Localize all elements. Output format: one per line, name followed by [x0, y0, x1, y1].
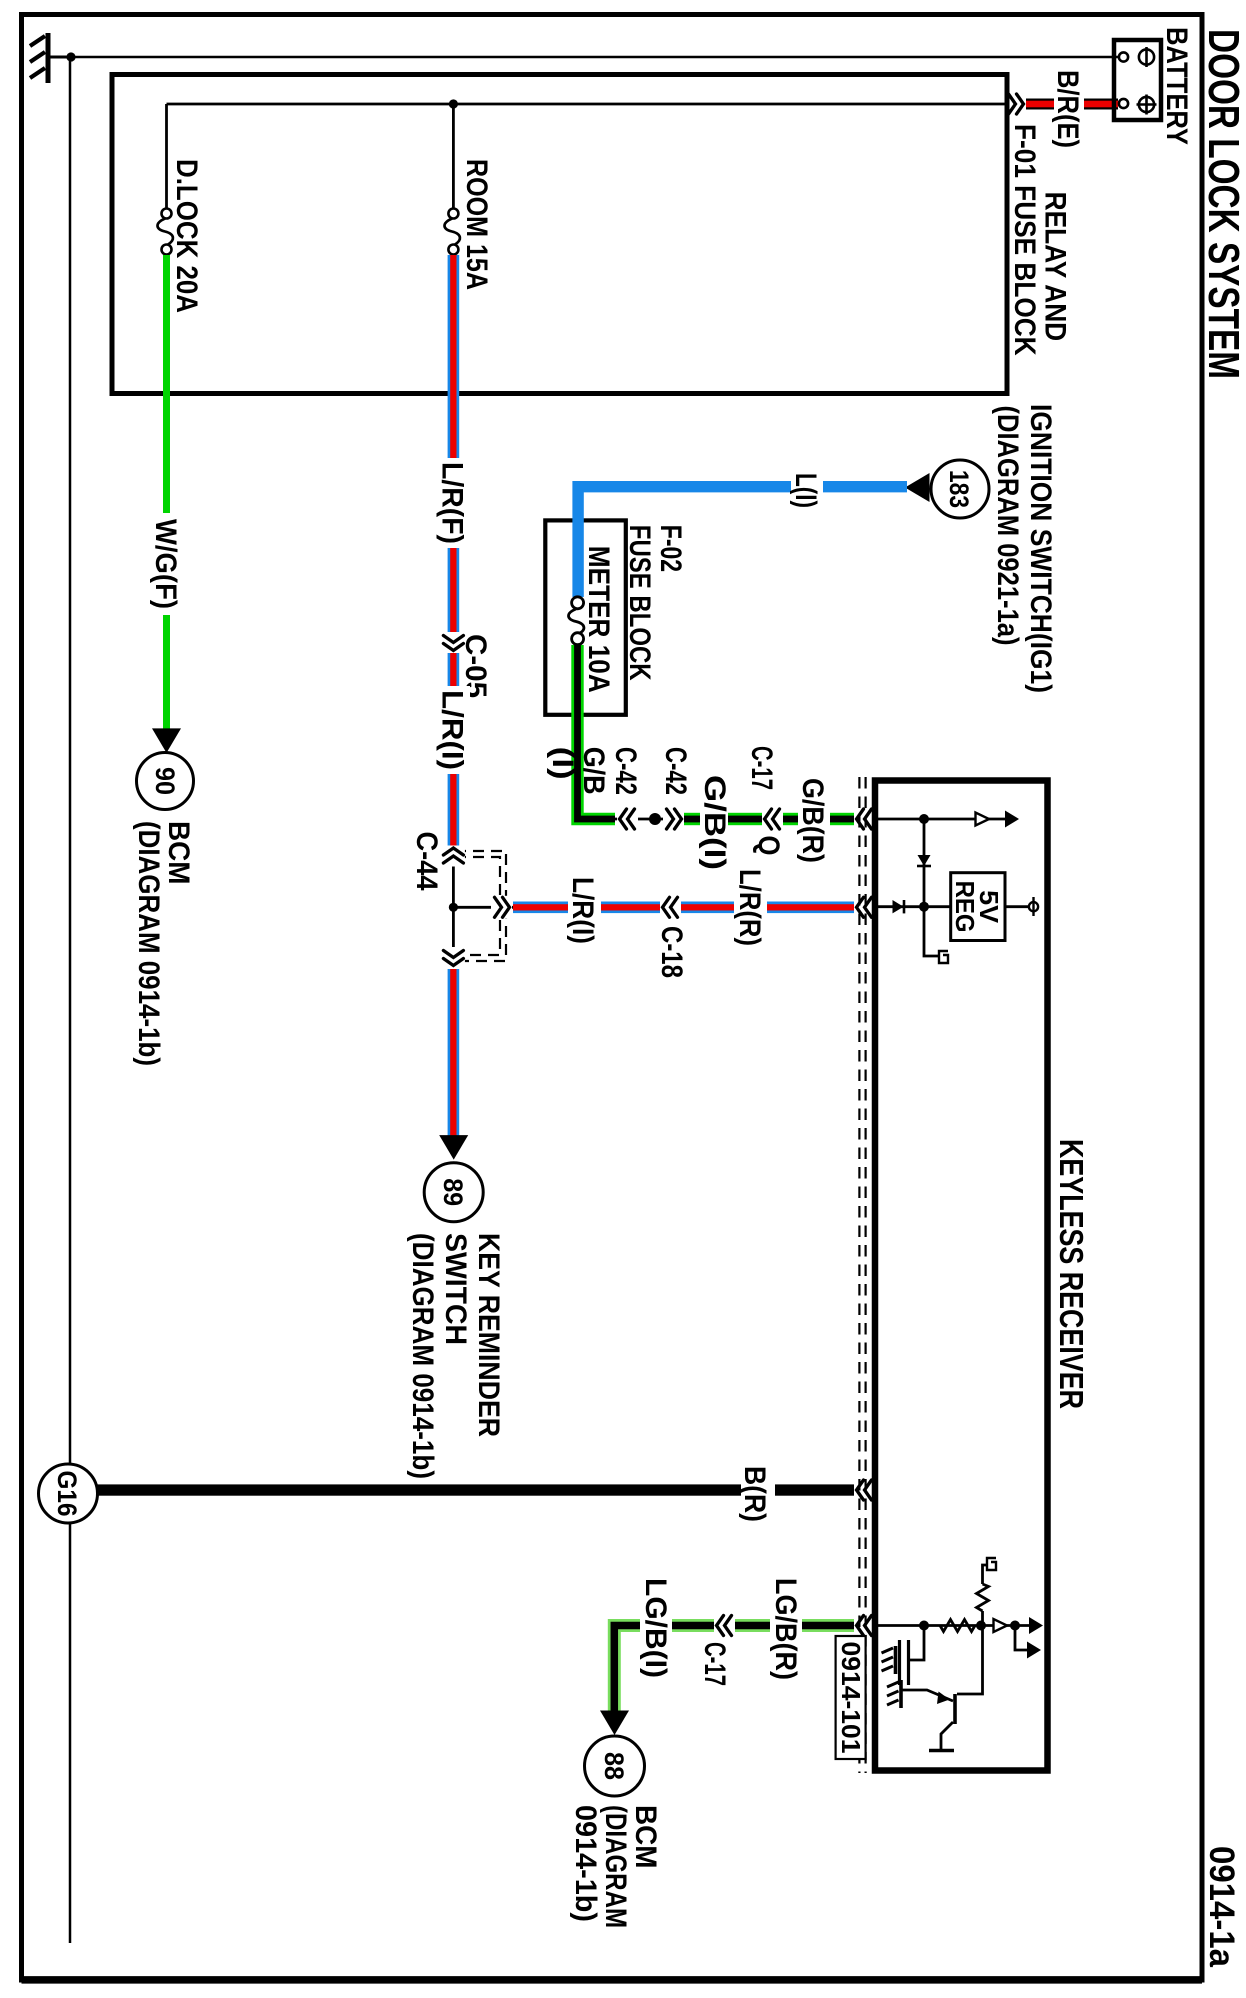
- svg-text:L/R(R): L/R(R): [733, 869, 766, 946]
- svg-text:G/B: G/B: [577, 747, 610, 795]
- svg-text:C-42: C-42: [659, 747, 692, 795]
- svg-text:G/B(R): G/B(R): [796, 778, 829, 863]
- svg-text:FUSE BLOCK: FUSE BLOCK: [623, 525, 656, 681]
- svg-text:BCM: BCM: [162, 821, 195, 885]
- svg-text:Q: Q: [752, 836, 785, 856]
- svg-text:90: 90: [150, 767, 180, 795]
- svg-text:0914-101: 0914-101: [836, 1642, 866, 1754]
- svg-text:LG/B(R): LG/B(R): [769, 1578, 802, 1680]
- svg-text:L/R(F): L/R(F): [436, 462, 469, 544]
- svg-text:L(I): L(I): [789, 473, 822, 508]
- svg-text:RELAY AND: RELAY AND: [1039, 192, 1072, 342]
- svg-text:SWITCH: SWITCH: [439, 1233, 472, 1345]
- svg-text:(DIAGRAM 0914-1b): (DIAGRAM 0914-1b): [406, 1233, 439, 1479]
- svg-text:LG/B(I): LG/B(I): [639, 1578, 672, 1678]
- svg-text:C-44: C-44: [410, 832, 443, 891]
- svg-text:L/R(I): L/R(I): [566, 877, 599, 944]
- svg-text:(DIAGRAM 0914-1b): (DIAGRAM 0914-1b): [132, 821, 165, 1066]
- svg-text:REG: REG: [950, 881, 980, 933]
- svg-text:C-17: C-17: [745, 746, 778, 790]
- svg-text:G16: G16: [52, 1471, 82, 1517]
- svg-text:G/B(I): G/B(I): [698, 775, 731, 870]
- svg-text:KEYLESS RECEIVER: KEYLESS RECEIVER: [1053, 1139, 1090, 1409]
- svg-text:(DIAGRAM 0921-1a): (DIAGRAM 0921-1a): [991, 406, 1024, 646]
- svg-text:B/R(E): B/R(E): [1051, 70, 1084, 148]
- svg-text:B(R): B(R): [738, 1466, 771, 1522]
- svg-text:(DIAGRAM: (DIAGRAM: [599, 1805, 632, 1928]
- svg-text:F-02: F-02: [654, 525, 687, 572]
- svg-text:88: 88: [599, 1752, 629, 1780]
- svg-text:183: 183: [944, 470, 974, 508]
- svg-text:KEY REMINDER: KEY REMINDER: [472, 1233, 505, 1437]
- svg-text:ROOM 15A: ROOM 15A: [460, 159, 493, 290]
- svg-text:DOOR LOCK SYSTEM: DOOR LOCK SYSTEM: [1199, 29, 1246, 379]
- svg-text:F-01 FUSE BLOCK: F-01 FUSE BLOCK: [1008, 124, 1041, 356]
- svg-text:C-17: C-17: [698, 1642, 731, 1686]
- svg-text:L/R(I): L/R(I): [436, 690, 469, 770]
- svg-text:C-42: C-42: [609, 747, 642, 795]
- svg-text:W/G(F): W/G(F): [149, 519, 182, 609]
- svg-text:BCM: BCM: [629, 1805, 662, 1869]
- svg-text:89: 89: [438, 1178, 468, 1206]
- svg-text:METER 10A: METER 10A: [582, 546, 615, 693]
- svg-text:0914-1b): 0914-1b): [569, 1805, 602, 1922]
- svg-text:(I): (I): [546, 747, 579, 780]
- svg-text:C-18: C-18: [655, 926, 688, 978]
- svg-text:D.LOCK 20A: D.LOCK 20A: [170, 159, 203, 313]
- svg-text:0914-1a: 0914-1a: [1202, 1846, 1241, 1967]
- svg-text:BATTERY: BATTERY: [1160, 27, 1193, 145]
- svg-text:IGNITION SWITCH(IG1): IGNITION SWITCH(IG1): [1024, 404, 1057, 693]
